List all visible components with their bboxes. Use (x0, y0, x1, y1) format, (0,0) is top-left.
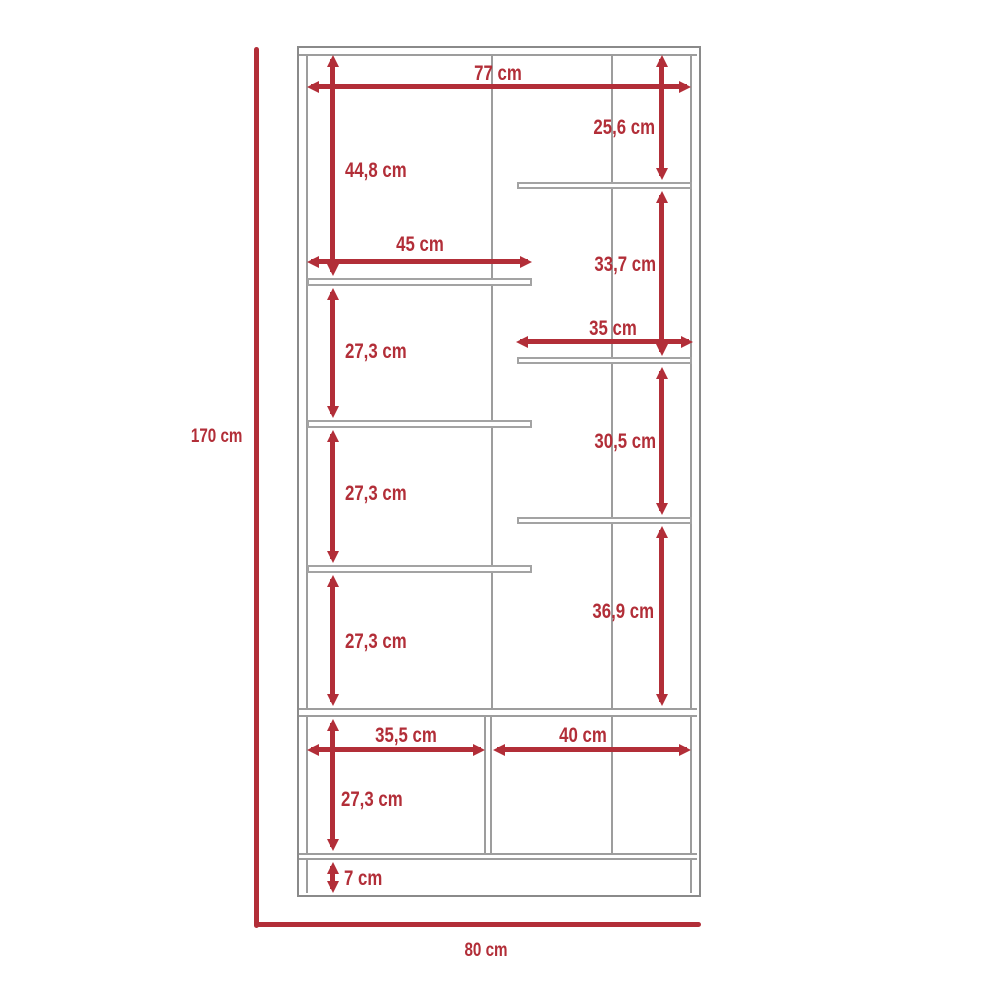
label-right-shelf-width: 35 cm (553, 316, 673, 342)
right-shelf-1 (517, 182, 692, 189)
arrowhead-left-icon (493, 744, 505, 756)
label-right-gap-3: 36,9 cm (592, 599, 654, 625)
arrowhead-right-icon (679, 81, 691, 93)
left-shelf-1 (307, 278, 532, 286)
arrowhead-up-icon (327, 862, 339, 874)
arrowhead-right-icon (681, 336, 693, 348)
dim-plinth-height (327, 862, 339, 893)
arrowhead-up-icon (656, 526, 668, 538)
label-left-gap-1: 27,3 cm (345, 339, 407, 365)
arrowhead-up-icon (656, 55, 668, 67)
arrowhead-right-icon (473, 744, 485, 756)
label-left-gap-4: 27,3 cm (341, 787, 403, 813)
middle-full-shelf (299, 708, 697, 717)
right-shelf-3 (517, 517, 692, 524)
right-shelf-2 (517, 357, 692, 364)
left-shelf-3 (307, 565, 532, 573)
label-right-gap-1: 33,7 cm (594, 252, 656, 278)
dimension-line (330, 723, 335, 847)
arrowhead-left-icon (307, 744, 319, 756)
dimension-line (330, 434, 335, 559)
overall-width-line (254, 922, 701, 927)
arrowhead-up-icon (656, 367, 668, 379)
arrowhead-up-icon (327, 575, 339, 587)
label-right-gap-2: 30,5 cm (594, 429, 656, 455)
arrowhead-up-icon (327, 719, 339, 731)
right-wall-inner-line (690, 54, 692, 893)
center-divider (491, 54, 493, 708)
bottom-panel (299, 853, 697, 860)
dim-right-gap-3 (656, 526, 668, 706)
arrowhead-right-icon (520, 256, 532, 268)
label-left-gap-3: 27,3 cm (345, 629, 407, 655)
label-left-shelf-width: 45 cm (360, 232, 480, 258)
arrowhead-up-icon (327, 288, 339, 300)
dim-left-gap-1 (327, 288, 339, 418)
label-left-top-gap: 44,8 cm (345, 158, 407, 184)
arrowhead-left-icon (307, 81, 319, 93)
bottom-partition (484, 717, 492, 853)
label-overall-height: 170 cm (190, 424, 242, 450)
arrowhead-down-icon (327, 406, 339, 418)
arrowhead-up-icon (656, 191, 668, 203)
dim-left-gap-4 (327, 719, 339, 851)
arrowhead-down-icon (327, 694, 339, 706)
arrowhead-down-icon (327, 839, 339, 851)
left-wall-inner-line (306, 54, 308, 893)
dim-left-gap-2 (327, 430, 339, 563)
arrowhead-left-icon (307, 256, 319, 268)
top-panel-inner-line (299, 54, 697, 56)
dimension-line (330, 579, 335, 702)
label-left-gap-2: 27,3 cm (345, 481, 407, 507)
arrowhead-down-icon (656, 168, 668, 180)
arrowhead-down-icon (656, 694, 668, 706)
arrowhead-up-icon (327, 55, 339, 67)
label-inner-width: 77 cm (438, 61, 558, 87)
label-bottom-left-width: 35,5 cm (346, 723, 466, 749)
dimension-line (659, 371, 664, 511)
dimension-line (659, 59, 664, 176)
dimension-line (659, 530, 664, 702)
arrowhead-up-icon (327, 430, 339, 442)
dim-left-gap-3 (327, 575, 339, 706)
left-shelf-2 (307, 420, 532, 428)
dimension-line (330, 292, 335, 414)
label-overall-width: 80 cm (426, 938, 546, 964)
arrowhead-right-icon (679, 744, 691, 756)
dimension-diagram: 77 cm 44,8 cm 25,6 cm 45 cm 33,7 cm 35 c… (0, 0, 1000, 1000)
label-plinth-height: 7 cm (344, 866, 382, 892)
dim-right-gap-2 (656, 367, 668, 515)
label-right-top-gap: 25,6 cm (593, 115, 655, 141)
arrowhead-down-icon (327, 551, 339, 563)
overall-height-line (254, 47, 259, 928)
arrowhead-down-icon (656, 503, 668, 515)
arrowhead-left-icon (516, 336, 528, 348)
dimension-line (311, 259, 528, 264)
dim-right-top-gap (656, 55, 668, 180)
label-bottom-right-width: 40 cm (523, 723, 643, 749)
arrowhead-down-icon (327, 881, 339, 893)
